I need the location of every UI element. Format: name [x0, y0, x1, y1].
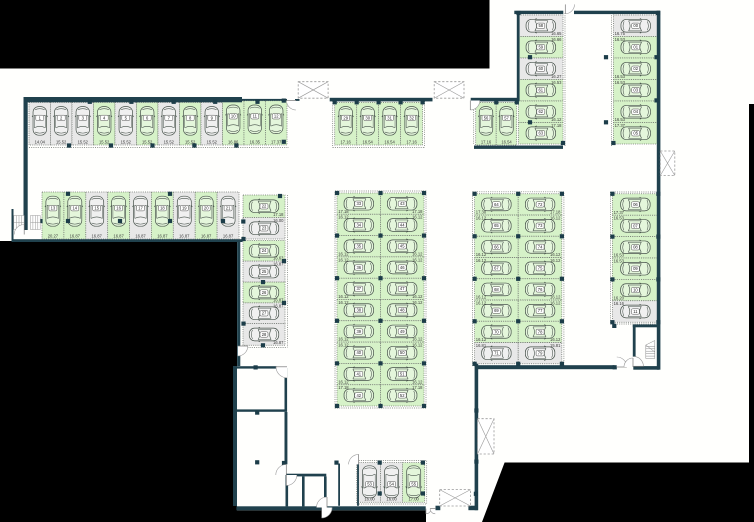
svg-text:48: 48: [400, 308, 405, 313]
svg-text:16.12: 16.12: [551, 117, 562, 122]
svg-text:16.12: 16.12: [338, 300, 349, 305]
svg-text:17.37: 17.37: [614, 210, 625, 215]
svg-text:15.52: 15.52: [121, 139, 132, 144]
svg-text:16.27: 16.27: [551, 74, 562, 79]
svg-text:46: 46: [400, 265, 405, 270]
svg-text:17.16: 17.16: [481, 139, 492, 144]
svg-text:67: 67: [494, 266, 499, 271]
svg-text:15: 15: [94, 206, 99, 211]
svg-text:14.04: 14.04: [35, 139, 46, 144]
svg-text:24: 24: [262, 248, 267, 253]
svg-text:20.27: 20.27: [48, 233, 59, 238]
svg-text:16.12: 16.12: [412, 379, 423, 384]
svg-text:16.12: 16.12: [338, 337, 349, 342]
svg-text:20: 20: [204, 206, 209, 211]
svg-text:16.12: 16.12: [412, 300, 423, 305]
svg-text:64: 64: [494, 202, 499, 207]
svg-text:16.53: 16.53: [615, 80, 626, 85]
svg-text:16.16: 16.16: [614, 301, 625, 306]
svg-text:36: 36: [356, 265, 361, 270]
svg-text:15.52: 15.52: [207, 139, 218, 144]
svg-text:16.12: 16.12: [338, 379, 349, 384]
svg-text:16.12: 16.12: [412, 215, 423, 220]
svg-text:16.53: 16.53: [615, 117, 626, 122]
svg-text:38: 38: [356, 308, 361, 313]
svg-text:10: 10: [231, 114, 236, 119]
svg-text:16.87: 16.87: [201, 233, 212, 238]
svg-text:16.81: 16.81: [476, 343, 487, 348]
svg-text:16.87: 16.87: [157, 233, 168, 238]
svg-text:16.87: 16.87: [179, 233, 190, 238]
svg-text:16.87: 16.87: [135, 233, 146, 238]
svg-text:15.52: 15.52: [78, 139, 89, 144]
svg-text:10: 10: [633, 288, 638, 293]
svg-text:16: 16: [116, 206, 121, 211]
svg-text:31: 31: [387, 115, 392, 120]
svg-text:16.12: 16.12: [338, 252, 349, 257]
svg-text:41: 41: [356, 371, 361, 376]
svg-text:16.53: 16.53: [614, 253, 625, 258]
svg-text:72: 72: [538, 202, 543, 207]
svg-text:11: 11: [253, 114, 258, 119]
svg-text:73: 73: [538, 223, 543, 228]
svg-text:44: 44: [400, 222, 405, 227]
svg-text:51: 51: [400, 371, 405, 376]
svg-text:28: 28: [262, 332, 267, 337]
svg-text:65: 65: [494, 223, 499, 228]
svg-text:16.53: 16.53: [551, 80, 562, 85]
svg-text:16.00: 16.00: [273, 218, 284, 223]
svg-text:17.37: 17.37: [615, 123, 626, 128]
svg-text:17.00: 17.00: [409, 497, 420, 502]
svg-text:58: 58: [538, 23, 543, 28]
svg-text:16.65: 16.65: [551, 31, 562, 36]
svg-text:17.18: 17.18: [412, 209, 423, 214]
svg-text:16.00: 16.00: [386, 497, 397, 502]
svg-text:76: 76: [538, 287, 543, 292]
svg-text:27: 27: [262, 311, 267, 316]
svg-text:52: 52: [400, 393, 405, 398]
svg-text:29: 29: [343, 115, 348, 120]
svg-text:50: 50: [400, 350, 405, 355]
svg-text:16.12: 16.12: [550, 300, 561, 305]
svg-text:16.12: 16.12: [338, 294, 349, 299]
svg-text:16.12: 16.12: [476, 216, 487, 221]
svg-text:17.18: 17.18: [412, 385, 423, 390]
svg-text:16.87: 16.87: [92, 233, 103, 238]
svg-text:78: 78: [538, 329, 543, 334]
svg-text:04: 04: [633, 109, 638, 114]
svg-text:16.87: 16.87: [113, 233, 124, 238]
svg-text:17.18: 17.18: [338, 209, 349, 214]
svg-text:37: 37: [356, 286, 361, 291]
svg-text:16.20: 16.20: [614, 295, 625, 300]
svg-text:16.12: 16.12: [412, 294, 423, 299]
svg-text:16.53: 16.53: [615, 74, 626, 79]
svg-text:16.53: 16.53: [614, 258, 625, 263]
svg-text:15.52: 15.52: [164, 139, 175, 144]
svg-text:16.12: 16.12: [476, 252, 487, 257]
svg-text:11: 11: [633, 309, 638, 314]
svg-text:49: 49: [400, 329, 405, 334]
svg-text:62: 62: [538, 109, 543, 114]
svg-text:16.12: 16.12: [412, 252, 423, 257]
svg-text:68: 68: [494, 287, 499, 292]
svg-text:15.81: 15.81: [550, 343, 561, 348]
svg-text:16.54: 16.54: [501, 139, 512, 144]
svg-text:16.87: 16.87: [223, 233, 234, 238]
svg-text:35: 35: [356, 244, 361, 249]
svg-text:56: 56: [484, 115, 489, 120]
svg-text:15.52: 15.52: [56, 139, 67, 144]
svg-text:17.18: 17.18: [551, 123, 562, 128]
svg-text:16.53: 16.53: [615, 37, 626, 42]
svg-text:19: 19: [182, 206, 187, 211]
svg-text:13: 13: [51, 206, 56, 211]
svg-text:16.75: 16.75: [615, 31, 626, 36]
svg-text:59: 59: [538, 45, 543, 50]
svg-text:00: 00: [633, 23, 638, 28]
svg-text:63: 63: [538, 131, 543, 136]
svg-text:47: 47: [400, 286, 405, 291]
svg-text:16.00: 16.00: [364, 497, 375, 502]
svg-text:17.30: 17.30: [476, 210, 487, 215]
svg-text:16.87: 16.87: [70, 233, 81, 238]
svg-text:09: 09: [633, 266, 638, 271]
svg-text:30: 30: [365, 115, 370, 120]
svg-text:03: 03: [633, 88, 638, 93]
svg-text:16.12: 16.12: [476, 300, 487, 305]
svg-text:16.12: 16.12: [476, 337, 487, 342]
svg-text:16.66: 16.66: [551, 37, 562, 42]
svg-text:16.12: 16.12: [338, 257, 349, 262]
svg-text:34: 34: [356, 222, 361, 227]
svg-text:17.16: 17.16: [406, 139, 417, 144]
svg-text:57: 57: [504, 115, 509, 120]
svg-text:16.54: 16.54: [363, 139, 374, 144]
svg-text:16.54: 16.54: [384, 139, 395, 144]
svg-text:45: 45: [400, 244, 405, 249]
svg-text:17.37: 17.37: [271, 139, 282, 144]
svg-text:39: 39: [356, 329, 361, 334]
svg-text:16.12: 16.12: [338, 343, 349, 348]
svg-text:32: 32: [409, 115, 414, 120]
svg-text:21: 21: [226, 206, 231, 211]
svg-text:16.12: 16.12: [338, 215, 349, 220]
svg-text:16.12: 16.12: [550, 216, 561, 221]
svg-text:16.87: 16.87: [273, 340, 284, 345]
svg-text:22: 22: [262, 204, 267, 209]
svg-text:02: 02: [633, 66, 638, 71]
svg-text:16.12: 16.12: [476, 258, 487, 263]
svg-text:17: 17: [138, 206, 143, 211]
svg-text:01: 01: [633, 45, 638, 50]
svg-text:17.18: 17.18: [550, 210, 561, 215]
svg-text:17.16: 17.16: [341, 139, 352, 144]
svg-text:69: 69: [494, 308, 499, 313]
svg-text:43: 43: [400, 201, 405, 206]
svg-text:16.12: 16.12: [476, 295, 487, 300]
svg-text:61: 61: [538, 88, 543, 93]
svg-text:16.35: 16.35: [250, 139, 261, 144]
svg-text:16.12: 16.12: [412, 337, 423, 342]
svg-text:55: 55: [411, 482, 416, 487]
svg-text:05: 05: [633, 131, 638, 136]
svg-text:12: 12: [274, 114, 279, 119]
svg-text:74: 74: [538, 244, 543, 249]
svg-text:15.52: 15.52: [99, 139, 110, 144]
svg-text:54: 54: [389, 482, 394, 487]
svg-text:18: 18: [160, 206, 165, 211]
svg-text:25: 25: [262, 269, 267, 274]
svg-text:16.12: 16.12: [550, 258, 561, 263]
svg-text:17.18: 17.18: [273, 212, 284, 217]
svg-text:71: 71: [494, 351, 499, 356]
svg-text:77: 77: [538, 308, 543, 313]
svg-text:66: 66: [494, 244, 499, 249]
svg-text:70: 70: [494, 329, 499, 334]
svg-text:79: 79: [538, 351, 543, 356]
svg-text:16.12: 16.12: [550, 337, 561, 342]
svg-text:16.12: 16.12: [550, 252, 561, 257]
svg-text:16.12: 16.12: [550, 295, 561, 300]
svg-text:16.12: 16.12: [412, 343, 423, 348]
svg-text:08: 08: [633, 245, 638, 250]
svg-text:75: 75: [538, 266, 543, 271]
svg-text:42: 42: [356, 393, 361, 398]
svg-text:16.12: 16.12: [412, 257, 423, 262]
svg-text:23: 23: [262, 226, 267, 231]
svg-text:60: 60: [538, 66, 543, 71]
svg-text:07: 07: [633, 223, 638, 228]
svg-text:16.53: 16.53: [614, 216, 625, 221]
svg-text:40: 40: [356, 350, 361, 355]
svg-text:26: 26: [262, 290, 267, 295]
svg-text:53: 53: [367, 482, 372, 487]
svg-text:06: 06: [633, 202, 638, 207]
svg-text:33: 33: [356, 201, 361, 206]
svg-text:17.18: 17.18: [338, 385, 349, 390]
svg-text:14: 14: [72, 206, 77, 211]
